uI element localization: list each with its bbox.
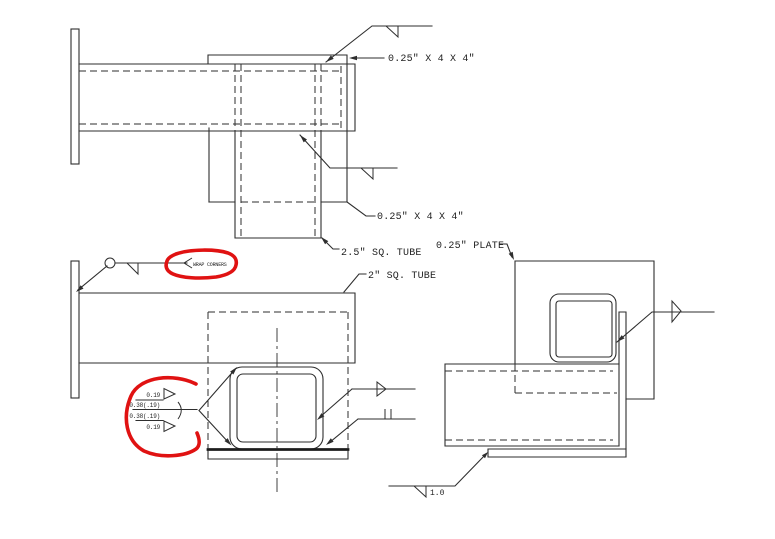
weld-bottom-groove-size: 0.38(.19) <box>129 413 160 420</box>
label-plate-4x4-mid: 0.25" X 4 X 4" <box>377 211 464 223</box>
label-plate-025: 0.25" PLATE <box>436 240 504 252</box>
drawing-background <box>0 0 775 539</box>
weld-top-groove-size: 0.38(.19) <box>129 402 160 409</box>
weld-top-fillet-size: 0.19 <box>146 392 160 399</box>
label-sq-tube-25: 2.5" SQ. TUBE <box>341 247 422 259</box>
label-weld-size-bottom: 1.0 <box>430 489 445 498</box>
label-plate-4x4-top: 0.25" X 4 X 4" <box>388 53 475 65</box>
weldment-drawing: 0.25" X 4 X 4" 0.25" X 4 X 4" 2.5" SQ. T… <box>0 0 775 539</box>
label-sq-tube-2: 2" SQ. TUBE <box>368 270 436 282</box>
weld-bottom-fillet-size: 0.19 <box>146 424 160 431</box>
cad-drawing-canvas: 0.25" X 4 X 4" 0.25" X 4 X 4" 2.5" SQ. T… <box>0 0 775 539</box>
label-wrap-corners: WRAP CORNERS <box>193 262 227 268</box>
